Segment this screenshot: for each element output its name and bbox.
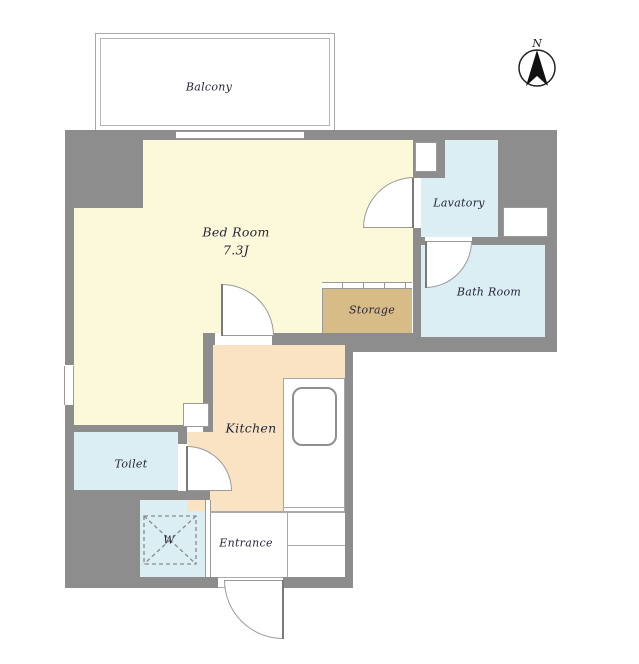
wall-segment [65, 425, 187, 432]
bedroom-floor [74, 282, 323, 334]
compass-north-label: N [531, 37, 542, 50]
kitchen-sink [292, 387, 337, 446]
toilet-label: Toilet [115, 458, 148, 471]
compass-needle-icon [526, 50, 548, 86]
shoe-cabinet-line [287, 545, 345, 546]
bedroom-area-label: 7.3J [223, 243, 249, 258]
kitchen-label: Kitchen [226, 421, 277, 436]
wall-segment [345, 345, 353, 588]
wall-segment [413, 228, 421, 337]
entrance-step [210, 511, 345, 513]
wall-column [72, 134, 143, 208]
toilet-door-leaf [186, 446, 188, 491]
washer-label: W [163, 534, 175, 547]
storage-label: Storage [349, 304, 395, 317]
kitchen-door-leaf [221, 284, 223, 336]
counter-line [283, 507, 345, 508]
wall-segment [345, 337, 557, 352]
wall-column [65, 500, 140, 588]
balcony-label: Balcony [186, 81, 232, 94]
entrance-divider [287, 511, 288, 577]
entrance-door-leaf [282, 580, 284, 639]
pipe-space [415, 142, 437, 172]
bedroom-label: Bed Room [202, 225, 269, 240]
storage-folding-door [322, 282, 412, 289]
floor-plan: N Balcony Bed Room 7.3J Lavatory Bath Ro… [0, 0, 639, 664]
wall-segment [545, 130, 557, 352]
wall-segment [283, 577, 353, 588]
bathroom-door-leaf [425, 241, 427, 288]
window [64, 366, 74, 405]
window [176, 131, 304, 139]
bathroom-label: Bath Room [457, 286, 521, 299]
door-opening [413, 178, 421, 228]
wall-segment [65, 490, 210, 500]
lavatory-label: Lavatory [433, 197, 485, 210]
pipe-space [183, 403, 209, 427]
compass: N [513, 34, 561, 92]
lavatory-door-leaf [412, 178, 414, 228]
entrance-door-swing [224, 580, 283, 639]
wall-segment [203, 333, 215, 345]
pipe-space [503, 207, 548, 237]
entrance-label: Entrance [219, 537, 273, 550]
wall-segment [472, 237, 545, 245]
